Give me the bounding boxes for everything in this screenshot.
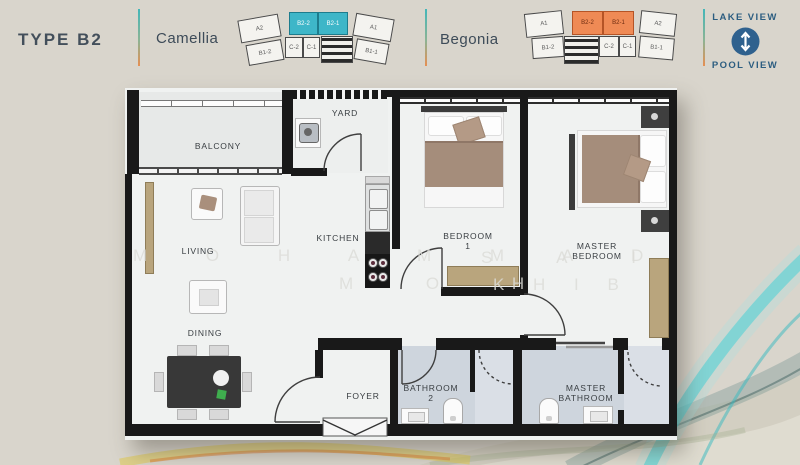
unit-chip-b2-1-highlighted: B2-1 <box>318 12 348 35</box>
room-label-dining: DINING <box>188 328 223 338</box>
shower-door-arc <box>628 352 662 386</box>
room-label-bathroom2: BATHROOM 2 <box>404 383 459 403</box>
lift-core-block <box>321 36 353 63</box>
header-divider-2 <box>425 9 427 66</box>
tower-name-begonia: Begonia <box>440 31 499 48</box>
unit-chip-c-2: C-2 <box>285 37 303 58</box>
entrance-double-door <box>323 418 387 436</box>
unit-chip-b2-1-highlighted: B2-1 <box>603 11 634 35</box>
master-bedroom-door-arc <box>524 294 565 335</box>
unit-chip-a2: A2 <box>639 10 677 37</box>
unit-chip-a1: A1 <box>524 10 564 38</box>
unit-chip-b2-2-highlighted: B2-2 <box>572 11 603 35</box>
room-label-master-bathroom: MASTER BATHROOM <box>559 383 614 403</box>
lake-view-label: LAKE VIEW <box>712 12 777 23</box>
foyer-door-arc <box>275 377 320 422</box>
unit-chip-b1-1: B1-1 <box>353 38 389 64</box>
tower-name-camellia: Camellia <box>156 30 218 47</box>
room-label-foyer: FOYER <box>346 391 379 401</box>
unit-chip-c-1: C-1 <box>619 36 636 57</box>
header-divider-1 <box>138 9 140 66</box>
brochure-page: TYPE B2 Camellia A2 B2-2 B2-1 A1 B1-2 C-… <box>0 0 800 465</box>
room-label-living: LIVING <box>182 246 215 256</box>
floorplan: M O H A M M A D S A I M O H K H I B BALC… <box>125 88 677 440</box>
room-label-master-bedroom: MASTER BEDROOM <box>572 241 622 261</box>
header-divider-3 <box>703 9 705 66</box>
keyplan-camellia: A2 B2-2 B2-1 A1 B1-2 C-2 C-1 B1-1 <box>237 4 397 72</box>
pool-view-label: POOL VIEW <box>712 60 778 71</box>
unit-chip-b1-1: B1-1 <box>638 36 675 61</box>
room-label-balcony: BALCONY <box>195 141 241 151</box>
updown-arrow-icon <box>731 27 760 56</box>
plan-type-title: TYPE B2 <box>18 30 103 50</box>
lift-core-block <box>564 36 599 64</box>
unit-chip-b2-2-highlighted: B2-2 <box>289 12 318 35</box>
watermark-text: K H I B <box>493 275 631 295</box>
yard-door-arc <box>324 134 361 171</box>
shower-door-arc <box>479 350 513 384</box>
room-label-kitchen: KITCHEN <box>317 233 360 243</box>
unit-chip-c-2: C-2 <box>599 36 619 57</box>
unit-chip-b1-2: B1-2 <box>245 39 284 66</box>
bathroom2-door-arc <box>402 350 436 384</box>
master-bathroom-sliding-door <box>556 343 613 347</box>
unit-chip-c-1: C-1 <box>303 37 320 58</box>
room-label-yard: YARD <box>332 108 358 118</box>
room-label-bedroom1: BEDROOM 1 <box>443 231 493 251</box>
unit-chip-b1-2: B1-2 <box>531 36 564 59</box>
keyplan-begonia: A1 B2-2 B2-1 A2 B1-2 C-2 C-1 B1-1 <box>523 4 693 72</box>
